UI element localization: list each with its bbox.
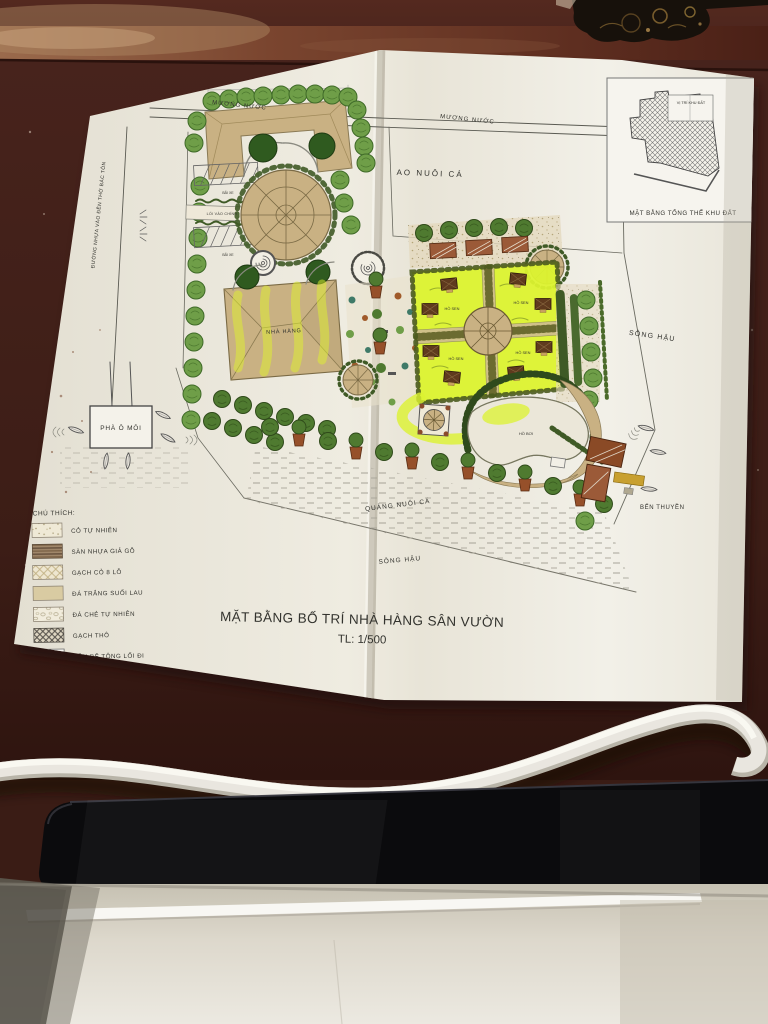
legend-label-splitstone: ĐÁ CHẺ TỰ NHIÊN [72,610,135,619]
label-pool: HỒ BƠI [519,431,533,436]
label-lotus-1: HỒ SEN [445,306,460,311]
legend-swatch-rawbrick [34,628,64,643]
scene-canvas: MƯƠNG NƯỚC MƯƠNG NƯỚC AO NUÔI CÁ ĐƯỜNG N… [0,0,768,1024]
lotus-quad [412,262,563,403]
photo-scene: MƯƠNG NƯỚC MƯƠNG NƯỚC AO NUÔI CÁ ĐƯỜNG N… [0,0,768,1024]
label-parking-1: BÃI XE [222,190,234,195]
inset-site-label: VỊ TRÍ KHU ĐẤT [677,101,706,105]
label-main-entrance: LỐI VÀO CHÍNH [207,211,238,216]
inset-caption: MẶT BẰNG TỔNG THỂ KHU ĐẤT [629,209,736,217]
label-ferry: PHÀ Ô MÔI [100,423,142,432]
label-boat-dock: BẾN THUYỀN [640,504,685,511]
legend-label-rawbrick: GẠCH THÔ [73,632,110,640]
label-lotus-4: HỒ SEN [516,350,531,355]
plan-scale: TL: 1/500 [338,633,387,646]
legend-swatch-grassbrick [33,565,63,580]
kiosk-round [339,361,377,399]
label-parking-2: BÃI XE [222,252,234,257]
legend-swatch-splitstone [33,607,63,622]
label-lotus-2: HỒ SEN [514,300,529,305]
legend-label-grassbrick: GẠCH CỎ 8 LỖ [72,569,122,577]
site-plan-paper: MƯƠNG NƯỚC MƯƠNG NƯỚC AO NUÔI CÁ ĐƯỜNG N… [14,50,755,710]
label-lotus-3: HỒ SEN [449,356,464,361]
bottom-surface [0,878,768,1024]
legend-swatch-grass [32,523,62,538]
legend-label-wood: SÀN NHỰA GIẢ GỖ [71,548,135,556]
legend-swatch-whitestone [33,586,63,601]
gazebo-square [417,403,450,436]
legend-label-whitestone: ĐÁ TRẮNG SUỐI LAU [72,589,143,598]
water-region-left [60,446,190,488]
legend-swatch-wood [32,544,62,559]
legend-label-grass: CỎ TỰ NHIÊN [71,526,118,535]
